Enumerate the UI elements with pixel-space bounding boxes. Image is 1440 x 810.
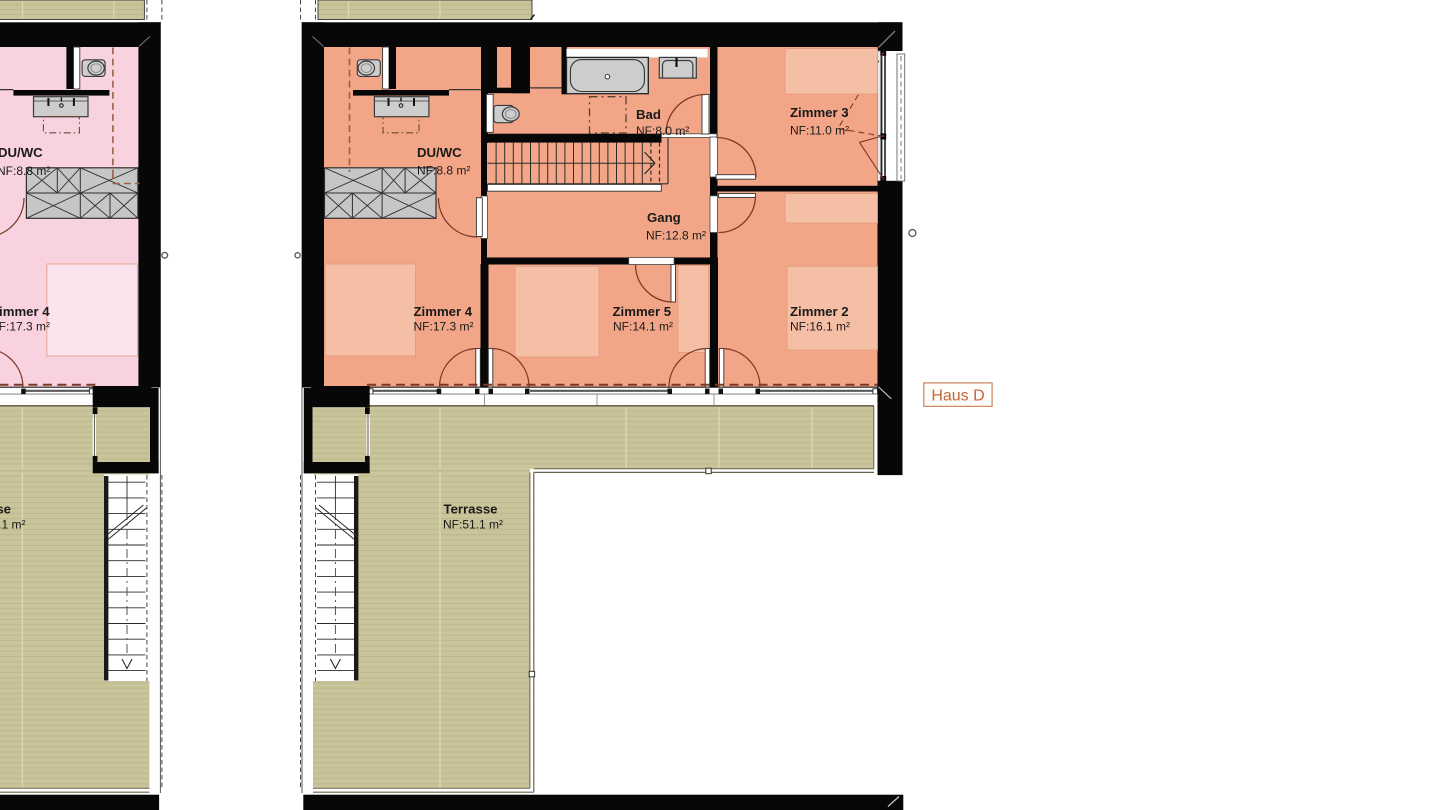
svg-text:Gang: Gang — [647, 210, 681, 225]
svg-text:Zimmer 2: Zimmer 2 — [790, 304, 849, 319]
svg-text:Terrasse: Terrasse — [0, 502, 11, 517]
svg-text:Zimmer 5: Zimmer 5 — [613, 304, 672, 319]
svg-text:Terrasse: Terrasse — [444, 502, 498, 517]
svg-text:NF:17.3 m²: NF:17.3 m² — [414, 320, 474, 334]
svg-text:NF:17.3 m²: NF:17.3 m² — [0, 320, 50, 334]
svg-text:DU/WC: DU/WC — [0, 145, 43, 160]
svg-text:NF:51.1 m²: NF:51.1 m² — [0, 518, 26, 532]
svg-text:NF:8.8 m²: NF:8.8 m² — [0, 164, 50, 178]
svg-text:NF:51.1 m²: NF:51.1 m² — [443, 518, 503, 532]
svg-text:NF:11.0 m²: NF:11.0 m² — [790, 124, 849, 138]
svg-text:NF:16.1 m²: NF:16.1 m² — [790, 320, 850, 334]
svg-text:Haus D: Haus D — [931, 388, 984, 405]
svg-text:DU/WC: DU/WC — [417, 145, 462, 160]
svg-text:NF:8.8 m²: NF:8.8 m² — [417, 164, 470, 178]
svg-text:NF:12.8 m²: NF:12.8 m² — [646, 229, 706, 243]
svg-text:Bad: Bad — [636, 107, 661, 122]
svg-text:Zimmer 4: Zimmer 4 — [414, 304, 473, 319]
svg-text:Zimmer 3: Zimmer 3 — [790, 105, 849, 120]
svg-text:NF:14.1 m²: NF:14.1 m² — [613, 320, 673, 334]
svg-text:NF:8.0 m²: NF:8.0 m² — [636, 124, 689, 138]
svg-text:Zimmer 4: Zimmer 4 — [0, 304, 50, 319]
